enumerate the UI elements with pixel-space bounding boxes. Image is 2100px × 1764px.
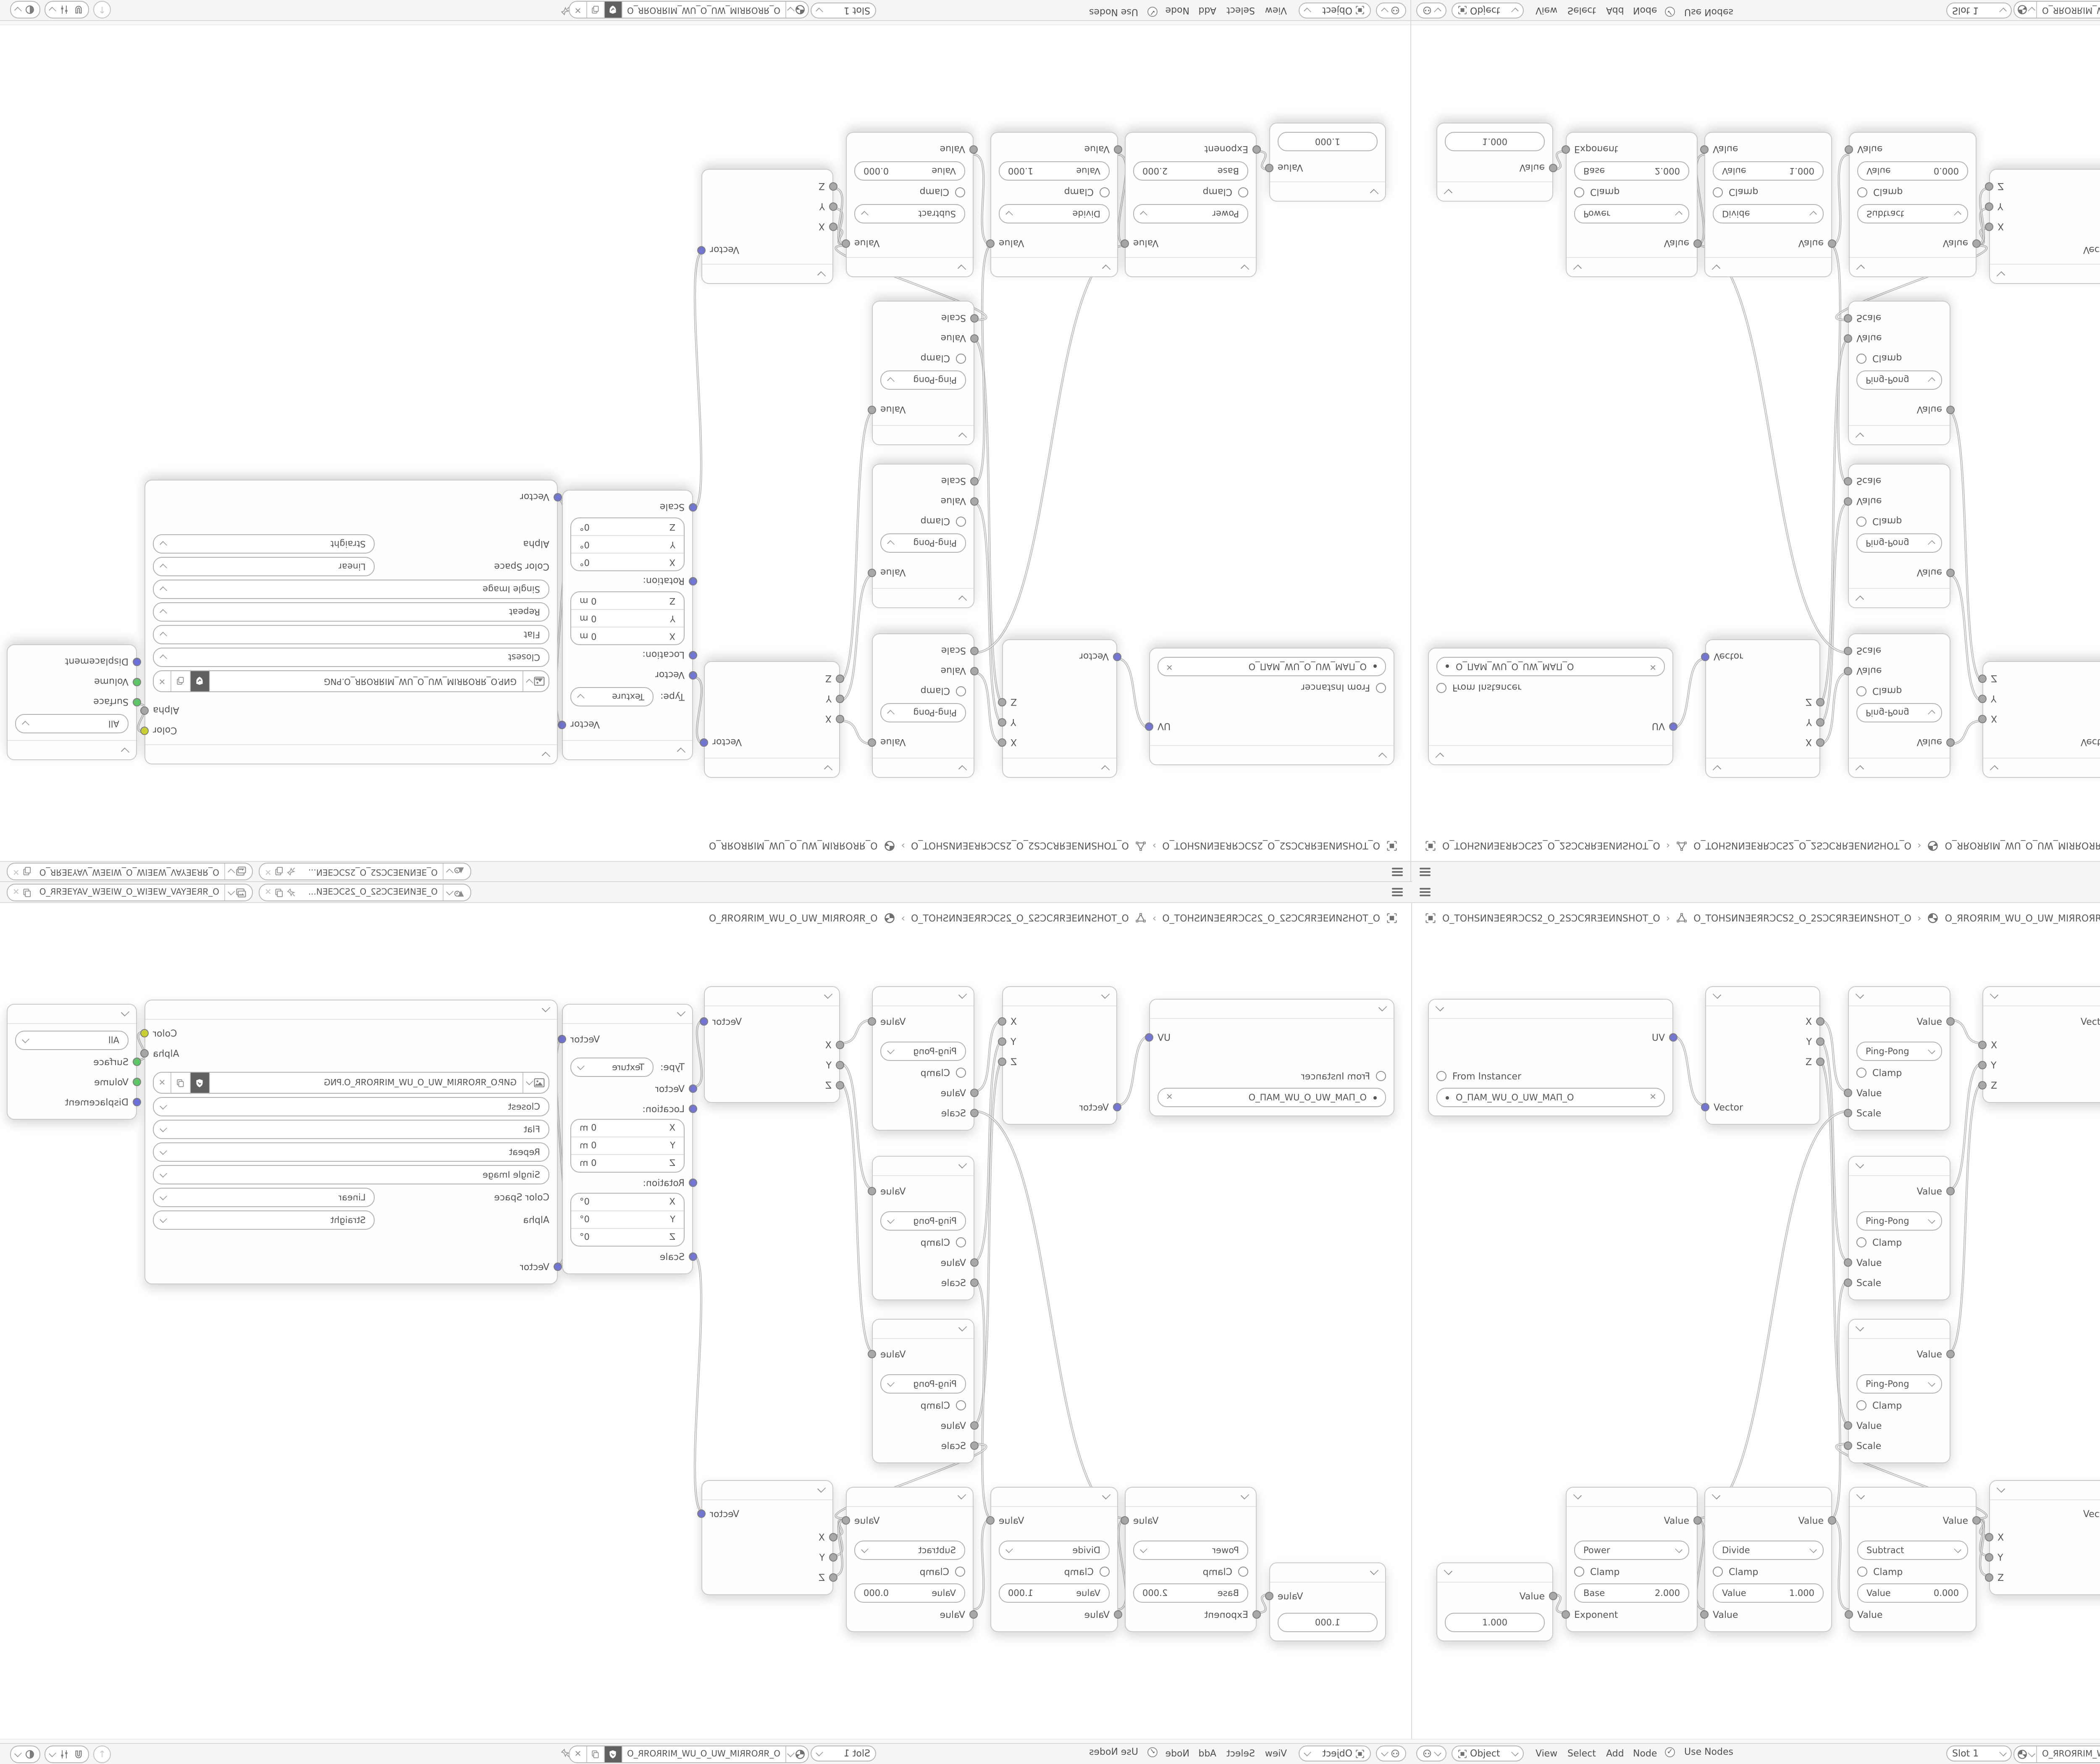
socket-color[interactable] — [140, 1029, 149, 1037]
xyz-fields[interactable]: X0 mY0 mZ0 m — [570, 1119, 685, 1173]
socket-scale[interactable] — [970, 314, 979, 323]
add-menu[interactable]: Add — [1198, 5, 1216, 16]
chk-row[interactable]: Clamp — [873, 1063, 974, 1083]
value-field[interactable]: Value0.000 — [854, 1583, 965, 1603]
chk-row[interactable]: Clamp — [847, 1562, 973, 1582]
node-header[interactable] — [847, 257, 973, 276]
checkbox-icon[interactable] — [1856, 1237, 1866, 1247]
all-select[interactable]: All — [15, 1031, 129, 1050]
repeat-select[interactable]: Repeat — [153, 602, 549, 622]
node-header[interactable] — [1706, 758, 1819, 777]
new-material-icon[interactable] — [586, 2, 604, 18]
socket-x[interactable] — [1978, 715, 1987, 723]
checkbox-icon[interactable] — [1376, 1071, 1386, 1081]
slot-dropdown[interactable]: Slot 1 — [1946, 3, 2012, 18]
node-menu[interactable]: Node — [1633, 5, 1657, 16]
mapping-node[interactable]: VectorType:TextureVectorLocation:X0 mY0 … — [562, 490, 693, 760]
shader-type-dropdown[interactable]: Object — [1299, 3, 1371, 18]
value-node[interactable]: Value1.000 — [1436, 123, 1553, 202]
node-header[interactable] — [1983, 987, 2100, 1006]
socket-z[interactable] — [836, 1081, 844, 1089]
socket-value[interactable] — [969, 145, 978, 154]
math-ping-pong-node-1[interactable]: ValuePing-PongClampValueScale — [1848, 633, 1950, 778]
node-header[interactable] — [1705, 1488, 1831, 1507]
combine-xyz-node-1[interactable]: VectorXYZ — [704, 661, 840, 778]
socket-vector[interactable] — [558, 1035, 566, 1043]
uv-map-select[interactable]: O_ПAM_WU_O_UW_MAП_O✕ — [1436, 657, 1665, 676]
image-icon[interactable] — [522, 1073, 549, 1093]
node-header[interactable] — [991, 257, 1117, 276]
material-name[interactable]: O_ЯROЯRIM_WU_O_UW_MIЯROЯR_O — [622, 1746, 785, 1762]
slot-dropdown[interactable]: Slot 1 — [1946, 1746, 2012, 1761]
socket-y[interactable] — [1985, 1553, 1993, 1562]
socket-value[interactable] — [1114, 145, 1122, 154]
socket-value[interactable] — [1946, 1187, 1955, 1195]
node-header[interactable] — [145, 744, 557, 764]
chk-row[interactable]: Clamp — [873, 512, 974, 532]
axis-field[interactable]: Z0° — [571, 1228, 684, 1246]
add-menu[interactable]: Add — [1198, 1748, 1216, 1759]
checkbox-icon[interactable] — [1238, 187, 1248, 197]
node-header[interactable] — [563, 1005, 692, 1024]
overlays-dropdown[interactable] — [10, 1, 40, 18]
repeat-select[interactable]: Repeat — [153, 1142, 549, 1162]
socket-value[interactable] — [1265, 164, 1273, 172]
node-header[interactable] — [873, 425, 974, 444]
socket-surface[interactable] — [133, 698, 141, 706]
chk-row[interactable]: Clamp — [1126, 182, 1256, 202]
math-power-node[interactable]: ValuePowerClampBase2.000Exponent — [1125, 1487, 1257, 1632]
new-scene-icon[interactable] — [274, 866, 284, 877]
socket-rotation-[interactable] — [689, 1179, 697, 1187]
node-menu[interactable]: Node — [1165, 1748, 1189, 1759]
chk-row[interactable]: Clamp — [1849, 681, 1950, 701]
power-select[interactable]: Power — [1133, 1541, 1248, 1560]
chk-row[interactable]: Clamp — [1705, 1562, 1831, 1582]
snapping-controls[interactable] — [45, 1, 89, 18]
socket-uv[interactable] — [1145, 722, 1153, 731]
socket-alpha[interactable] — [140, 706, 149, 715]
view-layer-selector[interactable]: O_ЯRƎEYAV_WƎEIW_O_WIƎEW_VAYƎEЯR_O ✕ — [7, 863, 253, 880]
socket-scale[interactable] — [689, 1252, 697, 1261]
select-menu[interactable]: Select — [1567, 5, 1596, 16]
socket-z[interactable] — [1816, 698, 1824, 706]
image-texture-node[interactable]: ColorAlphaGИP.O_ЯROЯRIM_WU_O_UW_MIЯROЯR_… — [144, 1000, 558, 1284]
chk-row[interactable]: From Instancer — [1150, 678, 1394, 698]
socket-scale[interactable] — [689, 503, 697, 512]
chk-row[interactable]: Clamp — [1849, 1232, 1950, 1252]
node-menu[interactable]: Node — [1633, 1748, 1657, 1759]
socket-z[interactable] — [829, 182, 837, 191]
socket-value[interactable] — [969, 1610, 978, 1619]
socket-surface[interactable] — [133, 1058, 141, 1066]
socket-z[interactable] — [1978, 1081, 1987, 1089]
socket-value[interactable] — [1845, 1610, 1853, 1619]
menu-icon[interactable] — [1392, 868, 1403, 876]
node-header[interactable] — [1003, 758, 1116, 777]
subtract-select[interactable]: Subtract — [1857, 204, 1968, 223]
math-divide-node[interactable]: ValueDivideClampValue1.000Value — [990, 1487, 1118, 1632]
image-icon[interactable] — [522, 671, 549, 691]
uv-map-node[interactable]: UVFrom InstancerO_ПAM_WU_O_UW_MAП_O✕ — [1149, 999, 1394, 1116]
chk-row[interactable]: Clamp — [1849, 512, 1950, 532]
axis-field[interactable]: Z0 m — [571, 1154, 684, 1172]
node-header[interactable] — [705, 987, 839, 1006]
socket-value[interactable] — [1844, 1421, 1852, 1430]
node-header[interactable] — [1429, 745, 1672, 764]
chk-row[interactable]: Clamp — [873, 1232, 974, 1252]
socket-scale[interactable] — [970, 647, 979, 655]
divide-select[interactable]: Divide — [1713, 1541, 1824, 1560]
combine-xyz-node-2[interactable]: VectorXYZ — [1989, 169, 2100, 284]
math-power-node[interactable]: ValuePowerClampBase2.000Exponent — [1566, 1487, 1698, 1632]
subtract-select[interactable]: Subtract — [854, 204, 965, 223]
node-header[interactable] — [705, 758, 839, 777]
socket-scale[interactable] — [970, 1441, 979, 1450]
node-header[interactable] — [1849, 987, 1950, 1006]
chk-row[interactable]: Clamp — [873, 1395, 974, 1415]
math-divide-node[interactable]: ValueDivideClampValue1.000Value — [1704, 132, 1832, 277]
new-image-icon[interactable] — [171, 1073, 190, 1093]
node-header[interactable] — [991, 1488, 1117, 1507]
node-header[interactable] — [873, 758, 974, 777]
checkbox-icon[interactable] — [1436, 1071, 1446, 1081]
socket-x[interactable] — [836, 715, 844, 723]
material-selector[interactable]: O_ЯROЯRIM_WU_O_UW_MIЯROЯR_O ✕ — [2013, 1746, 2100, 1763]
checkbox-icon[interactable] — [956, 1068, 966, 1078]
node-header[interactable] — [1567, 257, 1697, 276]
socket-scale[interactable] — [1844, 1441, 1852, 1450]
new-image-icon[interactable] — [171, 671, 190, 691]
pin-icon[interactable] — [287, 866, 297, 877]
checkbox-icon[interactable] — [1857, 187, 1867, 197]
socket-value[interactable] — [1693, 239, 1702, 248]
checkbox-icon[interactable] — [1574, 187, 1584, 197]
node-header[interactable] — [563, 740, 692, 759]
socket-value[interactable] — [970, 497, 979, 506]
pin-icon[interactable] — [560, 5, 571, 16]
socket-value[interactable] — [1844, 334, 1852, 343]
checkbox-icon[interactable] — [1100, 1567, 1110, 1577]
shader-type-dropdown[interactable]: Object — [1452, 3, 1524, 18]
socket-value[interactable] — [1972, 1516, 1981, 1525]
socket-value[interactable] — [1972, 239, 1981, 248]
socket-x[interactable] — [998, 1017, 1006, 1026]
checkbox-icon[interactable] — [955, 187, 965, 197]
breadcrumb-scene[interactable]: O_TOHSИNƎEЯRƆCS2_O_2SƆCЯRƎEИNSHOT_O — [1162, 913, 1380, 924]
math-ping-pong-node-3[interactable]: ValuePing-PongClampValueScale — [1848, 1319, 1950, 1463]
new-material-icon[interactable] — [586, 1746, 604, 1762]
single-image-select[interactable]: Single Image — [153, 1165, 549, 1184]
socket-y[interactable] — [998, 1037, 1006, 1046]
uv-map-select[interactable]: O_ПAM_WU_O_UW_MAП_O✕ — [1158, 657, 1386, 676]
node-header[interactable] — [1849, 1157, 1950, 1176]
node-header[interactable] — [1849, 588, 1950, 607]
shader-type-dropdown[interactable]: Object — [1299, 1746, 1371, 1761]
socket-value[interactable] — [970, 334, 979, 343]
math-ping-pong-node-3[interactable]: ValuePing-PongClampValueScale — [872, 301, 974, 445]
socket-z[interactable] — [1978, 675, 1987, 683]
ping-pong-select[interactable]: Ping-Pong — [1856, 1374, 1942, 1394]
view-layer-name[interactable]: O_ЯRƎEYAV_WƎEIW_O_WIƎEW_VAYƎEЯR_O — [34, 888, 224, 897]
straight-select[interactable]: Straight — [153, 1210, 375, 1230]
material-output-node[interactable]: AllSurfaceVolumeDisplacement — [7, 644, 137, 760]
parent-up-button[interactable]: ↑ — [93, 1746, 111, 1763]
socket-vector[interactable] — [700, 1017, 708, 1026]
power-select[interactable]: Power — [1574, 204, 1689, 223]
socket-color[interactable] — [140, 727, 149, 735]
math-ping-pong-node-3[interactable]: ValuePing-PongClampValueScale — [1848, 301, 1950, 445]
checkbox-icon[interactable] — [1238, 1567, 1248, 1577]
straight-select[interactable]: Straight — [153, 534, 375, 554]
socket-z[interactable] — [998, 1058, 1006, 1066]
chk-row[interactable]: Clamp — [1126, 1562, 1256, 1582]
socket-uv[interactable] — [1145, 1033, 1153, 1042]
select-menu[interactable]: Select — [1226, 5, 1255, 16]
socket-value[interactable] — [1946, 1350, 1955, 1358]
separate-xyz-node[interactable]: XYZVector — [1705, 639, 1820, 778]
socket-location-[interactable] — [689, 1105, 697, 1113]
material-name[interactable]: O_ЯROЯRIM_WU_O_UW_MIЯROЯR_O — [622, 2, 785, 18]
math-ping-pong-node-1[interactable]: ValuePing-PongClampValueScale — [872, 633, 974, 778]
fake-user-toggle[interactable] — [190, 671, 209, 691]
node-menu[interactable]: Node — [1165, 5, 1189, 16]
socket-vector[interactable] — [1701, 1103, 1709, 1111]
socket-volume[interactable] — [133, 1078, 141, 1086]
socket-value[interactable] — [1549, 164, 1557, 172]
checkbox-icon[interactable] — [1713, 187, 1723, 197]
socket-value[interactable] — [986, 1516, 995, 1525]
axis-field[interactable]: Y0° — [571, 1210, 684, 1228]
socket-value[interactable] — [1121, 239, 1129, 248]
scene-selector[interactable]: O_ƎEИNƎEƆCS2_O_2SƆCƎEИ... ✕ — [259, 884, 471, 901]
node-header[interactable] — [1126, 1488, 1256, 1507]
image-name[interactable]: GИP.O_ЯROЯRIM_WU_O_UW_MIЯROЯR_O.PNG — [209, 671, 522, 691]
value-field[interactable]: Value1.000 — [999, 161, 1110, 181]
socket-value[interactable] — [1114, 1610, 1122, 1619]
value-node[interactable]: Value1.000 — [1269, 123, 1386, 202]
socket-y[interactable] — [829, 202, 837, 211]
editor-type-button[interactable] — [1416, 1746, 1446, 1761]
node-header[interactable] — [1003, 987, 1116, 1006]
socket-z[interactable] — [836, 675, 844, 683]
ping-pong-select[interactable]: Ping-Pong — [880, 1211, 966, 1231]
breadcrumb-material[interactable]: O_ЯROЯRIM_WU_O_UW_MIЯROЯR_O — [709, 840, 878, 851]
socket-value[interactable] — [1828, 239, 1836, 248]
socket-vector[interactable] — [700, 738, 708, 747]
uv-map-node[interactable]: UVFrom InstancerO_ПAM_WU_O_UW_MAП_O✕ — [1428, 648, 1673, 765]
combine-xyz-node-1[interactable]: VectorXYZ — [1982, 986, 2100, 1103]
axis-field[interactable]: X0° — [571, 554, 684, 570]
socket-y[interactable] — [836, 695, 844, 703]
math-ping-pong-node-1[interactable]: ValuePing-PongClampValueScale — [872, 986, 974, 1131]
combine-xyz-node-1[interactable]: VectorXYZ — [1982, 661, 2100, 778]
socket-value[interactable] — [1700, 145, 1709, 154]
socket-vector[interactable] — [554, 1263, 562, 1271]
socket-exponent[interactable] — [1562, 1610, 1570, 1619]
breadcrumb-scene[interactable]: O_TOHSИNƎEЯRƆCS2_O_2SƆCЯRƎEИNSHOT_O — [1162, 840, 1380, 851]
checkbox-icon[interactable] — [1100, 187, 1110, 197]
axis-field[interactable]: X0° — [571, 1194, 684, 1210]
socket-value[interactable] — [868, 406, 876, 414]
chk-row[interactable]: Clamp — [1850, 182, 1976, 202]
divide-select[interactable]: Divide — [999, 204, 1110, 223]
socket-value[interactable] — [970, 1089, 979, 1097]
socket-value[interactable] — [1549, 1592, 1557, 1600]
scene-name[interactable]: O_ƎEИNƎEƆCS2_O_2SƆCƎEИ... — [299, 867, 443, 876]
math-ping-pong-node-1[interactable]: ValuePing-PongClampValueScale — [1848, 986, 1950, 1131]
fake-user-toggle[interactable] — [604, 1746, 622, 1762]
checkbox-icon[interactable] — [1856, 354, 1866, 364]
socket-vector[interactable] — [558, 721, 566, 729]
socket-x[interactable] — [1978, 1041, 1987, 1049]
chk-row[interactable]: Clamp — [1567, 1562, 1697, 1582]
combine-xyz-node-2[interactable]: VectorXYZ — [1989, 1480, 2100, 1595]
socket-value[interactable] — [1844, 667, 1852, 675]
node-header[interactable] — [145, 1000, 557, 1020]
socket-y[interactable] — [1816, 1037, 1824, 1046]
new-scene-icon[interactable] — [274, 887, 284, 898]
breadcrumb-object[interactable]: O_TOHSИNƎEЯRƆCS2_O_2SƆCЯRƎEИNSHOT_O — [911, 913, 1129, 924]
socket-displacement[interactable] — [133, 1098, 141, 1106]
socket-x[interactable] — [829, 1533, 837, 1541]
fake-user-toggle[interactable] — [604, 2, 622, 18]
editor-type-button[interactable] — [1416, 3, 1446, 18]
unlink-icon[interactable]: ✕ — [1649, 1093, 1664, 1102]
menu-icon[interactable] — [1420, 888, 1431, 896]
menu-icon[interactable] — [1392, 888, 1403, 896]
use-nodes-toggle[interactable]: ✓ Use Nodes — [1665, 1746, 1733, 1757]
math-divide-node[interactable]: ValueDivideClampValue1.000Value — [990, 132, 1118, 277]
axis-field[interactable]: X0 m — [571, 627, 684, 644]
socket-value[interactable] — [1845, 145, 1853, 154]
node-header[interactable] — [873, 588, 974, 607]
checkbox-icon[interactable] — [956, 517, 966, 527]
checkbox-icon[interactable] — [956, 1237, 966, 1247]
socket-exponent[interactable] — [1252, 1610, 1261, 1619]
axis-field[interactable]: Z0 m — [571, 592, 684, 610]
subtract-select[interactable]: Subtract — [1857, 1541, 1968, 1560]
socket-x[interactable] — [1985, 223, 1993, 231]
separate-xyz-node[interactable]: XYZVector — [1705, 986, 1820, 1125]
node-header[interactable] — [1849, 758, 1950, 777]
material-name[interactable]: O_ЯROЯRIM_WU_O_UW_MIЯROЯR_O — [2037, 2, 2100, 18]
use-nodes-toggle[interactable]: ✓ Use Nodes — [1665, 7, 1733, 18]
select-menu[interactable]: Select — [1226, 1748, 1255, 1759]
socket-value[interactable] — [1844, 1089, 1852, 1097]
socket-value[interactable] — [842, 239, 850, 248]
value-field[interactable]: Base2.000 — [1133, 161, 1248, 181]
axis-field[interactable]: Z0° — [571, 518, 684, 536]
checkbox-icon[interactable] — [956, 1400, 966, 1410]
checkbox-icon[interactable] — [956, 354, 966, 364]
socket-value[interactable] — [842, 1516, 850, 1525]
socket-x[interactable] — [836, 1041, 844, 1049]
ping-pong-select[interactable]: Ping-Pong — [880, 1374, 966, 1394]
node-header[interactable] — [1429, 1000, 1672, 1019]
image-datablock[interactable]: GИP.O_ЯROЯRIM_WU_O_UW_MIЯROЯR_O.PNG✕ — [153, 1072, 549, 1094]
socket-uv[interactable] — [1669, 1033, 1677, 1042]
node-header[interactable] — [702, 1481, 832, 1500]
node-header[interactable] — [1437, 181, 1552, 201]
view-menu[interactable]: View — [1536, 1748, 1557, 1759]
socket-value[interactable] — [970, 1258, 979, 1267]
uv-map-select[interactable]: O_ПAM_WU_O_UW_MAП_O✕ — [1158, 1088, 1386, 1107]
socket-y[interactable] — [1978, 1061, 1987, 1069]
uv-map-select[interactable]: O_ПAM_WU_O_UW_MAП_O✕ — [1436, 1088, 1665, 1107]
node-header[interactable] — [8, 740, 136, 759]
socket-x[interactable] — [829, 223, 837, 231]
math-subtract-node[interactable]: ValueSubtractClampValue0.000Value — [1849, 132, 1977, 277]
chk-row[interactable]: Clamp — [1849, 1063, 1950, 1083]
new-layer-icon[interactable] — [22, 866, 32, 877]
parent-up-button[interactable]: ↑ — [93, 1, 111, 18]
uv-map-node[interactable]: UVFrom InstancerO_ПAM_WU_O_UW_MAП_O✕ — [1428, 999, 1673, 1116]
chk-row[interactable]: From Instancer — [1429, 678, 1672, 698]
node-header[interactable] — [1150, 745, 1394, 764]
math-ping-pong-node-2[interactable]: ValuePing-PongClampValueScale — [1848, 1156, 1950, 1300]
socket-vector[interactable] — [1113, 1103, 1121, 1111]
separate-xyz-node[interactable]: XYZVector — [1002, 986, 1117, 1125]
value-field[interactable]: 1.000 — [1278, 132, 1378, 151]
breadcrumb-material[interactable]: O_ЯROЯRIM_WU_O_UW_MIЯROЯR_O — [1945, 840, 2100, 851]
socket-value[interactable] — [1693, 1516, 1702, 1525]
socket-scale[interactable] — [1844, 647, 1852, 655]
divide-select[interactable]: Divide — [1713, 204, 1824, 223]
math-subtract-node[interactable]: ValueSubtractClampValue0.000Value — [846, 132, 974, 277]
unlink-icon[interactable]: ✕ — [13, 867, 20, 876]
socket-z[interactable] — [998, 698, 1006, 706]
unlink-icon[interactable]: ✕ — [154, 1073, 171, 1093]
view-menu[interactable]: View — [1536, 5, 1557, 16]
node-header[interactable] — [1437, 1563, 1552, 1583]
shader-type-dropdown[interactable]: Object — [1452, 1746, 1524, 1761]
material-output-node[interactable]: AllSurfaceVolumeDisplacement — [7, 1004, 137, 1120]
material-selector[interactable]: O_ЯROЯRIM_WU_O_UW_MIЯROЯR_O ✕ — [569, 1746, 809, 1763]
unlink-icon[interactable]: ✕ — [570, 2, 586, 18]
ping-pong-select[interactable]: Ping-Pong — [880, 703, 966, 722]
linear-select[interactable]: Linear — [153, 557, 375, 576]
socket-value[interactable] — [868, 569, 876, 577]
use-nodes-toggle[interactable]: ✓ Use Nodes — [1089, 1746, 1158, 1757]
socket-vector[interactable] — [689, 671, 697, 680]
axis-field[interactable]: Y0° — [571, 536, 684, 554]
math-ping-pong-node-2[interactable]: ValuePing-PongClampValueScale — [872, 464, 974, 608]
node-header[interactable] — [1850, 1488, 1976, 1507]
socket-scale[interactable] — [1844, 314, 1852, 323]
chk-row[interactable]: Clamp — [991, 1562, 1117, 1582]
pin-icon[interactable] — [287, 887, 297, 898]
unlink-icon[interactable]: ✕ — [1158, 1093, 1173, 1102]
socket-x[interactable] — [998, 738, 1006, 747]
scene-selector[interactable]: O_ƎEИNƎEƆCS2_O_2SƆCƎEИ... ✕ — [259, 863, 471, 880]
pin-icon[interactable] — [560, 1748, 571, 1759]
ping-pong-select[interactable]: Ping-Pong — [880, 533, 966, 553]
socket-value[interactable] — [868, 738, 876, 747]
socket-exponent[interactable] — [1252, 145, 1261, 154]
socket-y[interactable] — [1978, 695, 1987, 703]
socket-scale[interactable] — [1844, 1278, 1852, 1287]
socket-x[interactable] — [1816, 1017, 1824, 1026]
socket-value[interactable] — [1121, 1516, 1129, 1525]
fake-user-toggle[interactable] — [190, 1073, 209, 1093]
axis-field[interactable]: Y0 m — [571, 1137, 684, 1154]
node-header[interactable] — [1270, 1563, 1385, 1583]
chk-row[interactable]: From Instancer — [1429, 1066, 1672, 1086]
material-name[interactable]: O_ЯROЯRIM_WU_O_UW_MIЯROЯR_O — [2037, 1746, 2100, 1762]
checkbox-icon[interactable] — [1574, 1567, 1584, 1577]
unlink-icon[interactable]: ✕ — [265, 888, 272, 897]
